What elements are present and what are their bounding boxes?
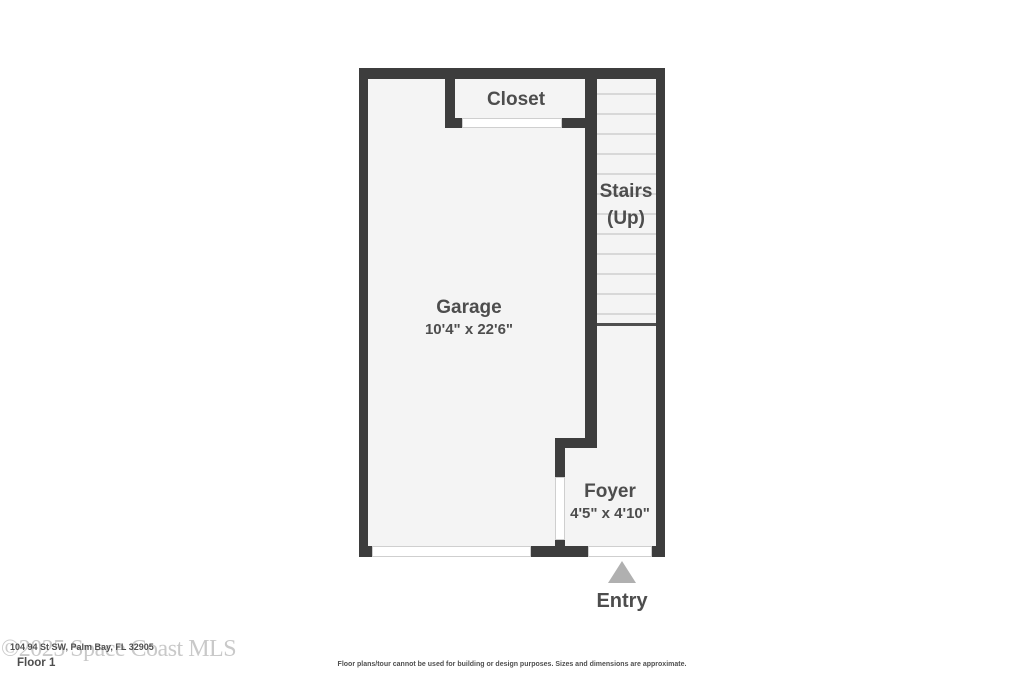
property-address: 104 94 St SW, Palm Bay, FL 32905 <box>10 642 154 652</box>
foyer-dimensions: 4'5" x 4'10" <box>570 504 650 523</box>
garage-label: Garage 10'4" x 22'6" <box>425 296 513 339</box>
foyer-wall-stub-top <box>555 448 565 477</box>
closet-door-opening <box>462 118 562 128</box>
closet-name: Closet <box>487 88 545 112</box>
floor-plan: Closet Stairs (Up) Garage 10'4" x 22'6" … <box>359 68 665 557</box>
garage-dimensions: 10'4" x 22'6" <box>425 320 513 339</box>
closet-label: Closet <box>487 88 545 112</box>
garage-door-opening <box>372 546 531 557</box>
floorplan-page: Closet Stairs (Up) Garage 10'4" x 22'6" … <box>0 0 1024 683</box>
foyer-wall-stub-bottom <box>555 540 565 546</box>
entry-door-opening <box>588 546 652 557</box>
disclaimer-text: Floor plans/tour cannot be used for buil… <box>0 661 1024 668</box>
foyer-name: Foyer <box>570 480 650 504</box>
entry-arrow-icon <box>608 561 636 583</box>
stairs-name-line1: Stairs <box>600 178 653 205</box>
garage-foyer-wall <box>555 438 597 448</box>
entry-label: Entry <box>596 590 647 613</box>
foyer-door-opening <box>555 477 565 540</box>
foyer-label: Foyer 4'5" x 4'10" <box>570 480 650 523</box>
stairs-name-line2: (Up) <box>600 205 653 232</box>
stairs-label: Stairs (Up) <box>600 178 653 232</box>
garage-name: Garage <box>425 296 513 320</box>
